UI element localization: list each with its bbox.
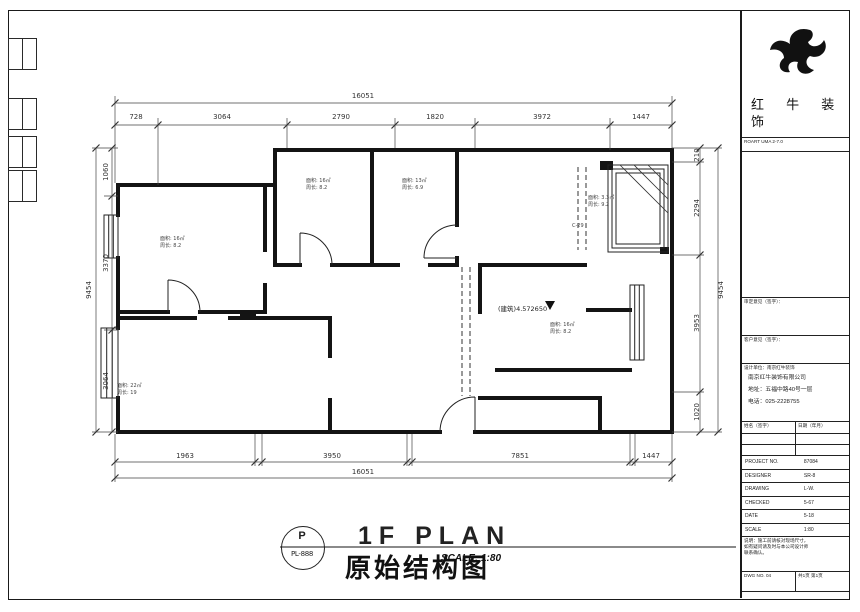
client-box: 客户意见（签字）： bbox=[742, 336, 849, 364]
brand-text-line1: 红 牛 装 bbox=[751, 94, 843, 113]
dwg-no-row: DWG NO. 04 共1页 第1页 bbox=[742, 572, 849, 592]
title-block-footer bbox=[742, 592, 849, 600]
bull-logo-icon bbox=[752, 18, 842, 90]
notes-box: 说明：施工前请核对现场尺寸， 如有疑问请及时与本公司设计师 联系确认。 bbox=[742, 537, 849, 572]
field-row: DATE5-18 bbox=[742, 510, 849, 524]
project-name-box bbox=[742, 152, 849, 298]
dim-label: 2790 bbox=[332, 113, 350, 121]
brand-logo-section: 红 牛 装 饰 bbox=[742, 10, 849, 138]
dim-label: 1820 bbox=[426, 113, 444, 121]
dim-left-overall: 9454 bbox=[85, 281, 93, 299]
brand-sub-row: ROART UMA 2-7.0 bbox=[742, 138, 849, 152]
level-annotation: (建筑)4.572650 bbox=[498, 303, 547, 313]
brand-text-line2: 饰 bbox=[751, 111, 764, 130]
dim-label: 3064 bbox=[213, 113, 231, 121]
company-address: 地址：五福中路40号一层 bbox=[742, 384, 849, 396]
company-phone: 电话：025-2228755 bbox=[742, 396, 849, 408]
windows bbox=[101, 165, 668, 398]
field-row: SCALE1:80 bbox=[742, 524, 849, 538]
room-label: 面积: 3.3㎡周长: 9.2 bbox=[588, 195, 614, 209]
dim-label: 210 bbox=[693, 148, 701, 161]
dimension-ticks bbox=[93, 100, 722, 482]
floor-plan-svg bbox=[0, 0, 860, 612]
drawing-sheet: 16051 728 3064 2790 1820 3972 1447 1963 … bbox=[0, 0, 860, 612]
dim-label: 1060 bbox=[102, 163, 110, 181]
doors bbox=[168, 225, 475, 432]
room-label: 面积: 22㎡周长: 19 bbox=[117, 383, 142, 397]
dim-label: 2294 bbox=[693, 199, 701, 217]
dim-label: 3064 bbox=[102, 372, 110, 390]
sign-date-header-row: 姓名（签字） 日期（年月） bbox=[742, 422, 849, 434]
company-box: 设计单位：南京红牛装饰 南京红牛装饰有限公司 地址：五福中路40号一层 电话：0… bbox=[742, 364, 849, 422]
field-row: CHECKED5-67 bbox=[742, 497, 849, 511]
plan-code: PL-888 bbox=[281, 550, 323, 558]
dimension-lines bbox=[92, 96, 722, 482]
dim-label: 1447 bbox=[642, 452, 660, 460]
wall-columns bbox=[240, 161, 669, 320]
notes-line: 如有疑问请及时与本公司设计师 bbox=[744, 544, 808, 549]
dim-label: 728 bbox=[129, 113, 142, 121]
dim-bottom-overall: 16051 bbox=[352, 468, 374, 476]
room-label: 面积: 16㎡周长: 8.2 bbox=[306, 178, 331, 192]
dim-label: 3972 bbox=[533, 113, 551, 121]
room-label: 面积: 16㎡周长: 8.2 bbox=[550, 322, 575, 336]
room-label: 面积: 13㎡周长: 6.9 bbox=[402, 178, 427, 192]
company-name: 南京红牛装饰有限公司 bbox=[742, 372, 849, 384]
plan-code-letter: P bbox=[281, 530, 323, 542]
dim-label: 1020 bbox=[693, 403, 701, 421]
dim-label: 3370 bbox=[102, 254, 110, 272]
title-block: 红 牛 装 饰 ROART UMA 2-7.0 审定意见（签字）： 客户意见（签… bbox=[740, 10, 849, 598]
field-row: DRAWINGL-W. bbox=[742, 483, 849, 497]
plan-scale: SCALE: 1:80 bbox=[441, 553, 501, 564]
notes-line: 说明：施工前请核对现场尺寸， bbox=[744, 538, 808, 543]
notes-line: 联系确认。 bbox=[744, 550, 767, 555]
sign-date-row bbox=[742, 445, 849, 456]
dim-right-overall: 9454 bbox=[717, 281, 725, 299]
page-count-label: 共1页 第1页 bbox=[796, 572, 849, 591]
dim-label: 1963 bbox=[176, 452, 194, 460]
plan-title-en: 1F PLAN bbox=[358, 522, 511, 551]
field-row: DESIGNERSR-8 bbox=[742, 470, 849, 484]
dim-label: 1447 bbox=[632, 113, 650, 121]
walls bbox=[118, 150, 672, 432]
dim-label: 3950 bbox=[323, 452, 341, 460]
sign-date-row bbox=[742, 434, 849, 445]
dim-top-overall: 16051 bbox=[352, 92, 374, 100]
dwg-no-label: DWG NO. 04 bbox=[742, 572, 796, 591]
balcony-glazing-hatch bbox=[620, 165, 668, 213]
window-tag: C-29 bbox=[572, 223, 584, 229]
dim-label: 7851 bbox=[511, 452, 529, 460]
approval-box: 审定意见（签字）： bbox=[742, 298, 849, 336]
field-row: PROJECT NO.87084 bbox=[742, 456, 849, 470]
dim-label: 3953 bbox=[693, 314, 701, 332]
room-label: 面积: 16㎡周长: 8.2 bbox=[160, 236, 185, 250]
